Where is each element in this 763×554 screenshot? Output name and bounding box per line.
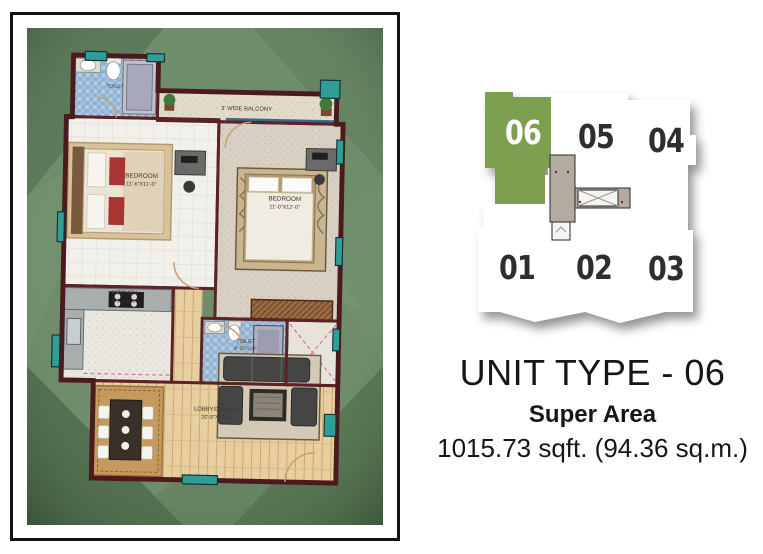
sofa-set [217, 353, 320, 440]
apartment-plan: TOILET 3' WIDE BALCONY BEDROOM 11'-6"X11… [49, 51, 346, 487]
bed-2 [235, 168, 327, 271]
unit-type-title: UNIT TYPE - 06 [425, 352, 760, 394]
balcony-label: 3' WIDE BALCONY [221, 106, 272, 113]
toilet-2-dims: 8'-0"X5'-0" [234, 346, 257, 353]
unit-number-06: 06 [505, 114, 541, 152]
floor-plan-panel: TOILET 3' WIDE BALCONY BEDROOM 11'-6"X11… [27, 28, 383, 525]
lobby-label: LOBBY/DINNING [194, 406, 240, 413]
kitchen-dims: 8'-3"X10'-0" [111, 298, 137, 305]
floor-plan-frame: TOILET 3' WIDE BALCONY BEDROOM 11'-6"X11… [10, 12, 400, 541]
lobby-dims: 20'-8"X12'-0" [201, 415, 232, 422]
bedroom-1-dims: 11'-6"X11'-0" [126, 181, 156, 188]
unit-number-01: 01 [499, 249, 535, 287]
unit-number-03: 03 [648, 250, 684, 288]
unit-number-04: 04 [648, 122, 684, 160]
bed-1 [67, 142, 173, 240]
bedroom-2-dims: 11'-0"X12'-0" [269, 204, 300, 211]
bedroom-2-label: BEDROOM [268, 195, 301, 203]
super-area-label: Super Area [425, 401, 760, 429]
area-value: 1015.73 sqft. (94.36 sq.m.) [425, 433, 760, 463]
floor-plan: TOILET 3' WIDE BALCONY BEDROOM 11'-6"X11… [27, 28, 383, 525]
toilet-1-label: TOILET [106, 83, 123, 89]
wardrobe [251, 299, 333, 321]
key-plan-shape: 06 05 04 01 02 03 [478, 92, 696, 323]
key-plan-svg: 06 05 04 01 02 03 [470, 80, 705, 340]
unit-number-02: 02 [576, 249, 612, 287]
unit-number-05: 05 [578, 118, 614, 156]
passage-floor [172, 288, 203, 383]
dining-set [93, 386, 163, 477]
unit-key-plan: 06 05 04 01 02 03 [470, 80, 705, 340]
bedroom-1-label: BEDROOM [125, 172, 158, 180]
lift-icon [552, 222, 570, 240]
toilet-2-label: TOILET [236, 339, 255, 345]
unit-info: UNIT TYPE - 06 Super Area 1015.73 sqft. … [425, 352, 760, 463]
kitchen-label: KITCHEN [112, 290, 138, 297]
brochure-page: TOILET 3' WIDE BALCONY BEDROOM 11'-6"X11… [0, 0, 763, 554]
